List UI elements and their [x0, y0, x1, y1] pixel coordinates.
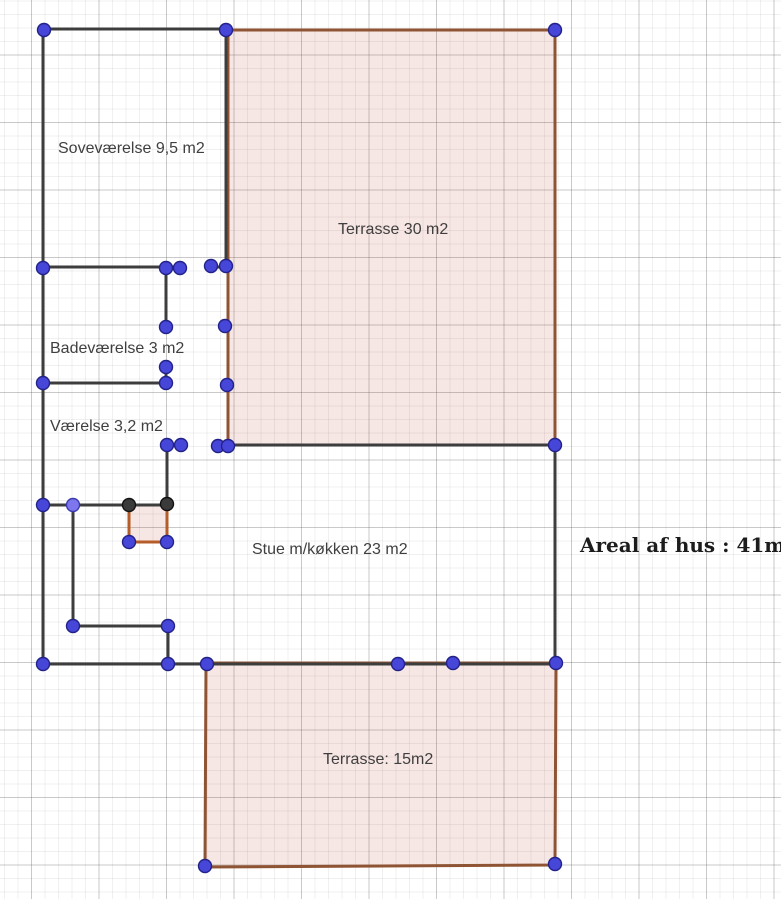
- vertex-point[interactable]: [199, 860, 212, 873]
- vertex-point[interactable]: [162, 658, 175, 671]
- label-terrasse-30: Terrasse 30 m2: [338, 221, 448, 238]
- vertex-point[interactable]: [221, 379, 234, 392]
- vertex-point[interactable]: [220, 260, 233, 273]
- label-sovevaerelse: Soveværelse 9,5 m2: [58, 140, 205, 157]
- vertex-point[interactable]: [37, 262, 50, 275]
- vertex-point[interactable]: [67, 499, 80, 512]
- label-terrasse-15: Terrasse: 15m2: [323, 751, 433, 768]
- vertex-point[interactable]: [161, 498, 174, 511]
- vertex-point[interactable]: [37, 499, 50, 512]
- label-vaerelse: Værelse 3,2 m2: [50, 418, 163, 435]
- label-stue: Stue m/køkken 23 m2: [252, 541, 408, 558]
- vertex-point[interactable]: [550, 657, 563, 670]
- vertex-point[interactable]: [37, 377, 50, 390]
- floorplan-svg: Soveværelse 9,5 m2Terrasse 30 m2Badevære…: [0, 0, 781, 899]
- vertex-point[interactable]: [123, 536, 136, 549]
- vertex-point[interactable]: [392, 658, 405, 671]
- label-badevaerelse: Badeværelse 3 m2: [50, 340, 184, 357]
- vertex-point[interactable]: [220, 24, 233, 37]
- vertex-point[interactable]: [549, 858, 562, 871]
- label-areal-af-hus: Areal af hus : 41m2: [579, 533, 781, 557]
- vertex-point[interactable]: [161, 536, 174, 549]
- vertex-point[interactable]: [219, 320, 232, 333]
- vertex-point[interactable]: [123, 499, 136, 512]
- vertex-point[interactable]: [160, 262, 173, 275]
- vertex-point[interactable]: [175, 439, 188, 452]
- vertex-point[interactable]: [222, 440, 235, 453]
- vertex-point[interactable]: [160, 361, 173, 374]
- vertex-point[interactable]: [161, 439, 174, 452]
- vertex-point[interactable]: [162, 620, 175, 633]
- vertex-point[interactable]: [160, 321, 173, 334]
- floorplan-canvas[interactable]: Soveværelse 9,5 m2Terrasse 30 m2Badevære…: [0, 0, 781, 899]
- vertex-point[interactable]: [549, 24, 562, 37]
- vertex-point[interactable]: [447, 657, 460, 670]
- vertex-point[interactable]: [160, 377, 173, 390]
- vertex-point[interactable]: [174, 262, 187, 275]
- fireplace-square-polygon[interactable]: [129, 505, 167, 542]
- vertex-point[interactable]: [38, 24, 51, 37]
- vertex-point[interactable]: [549, 439, 562, 452]
- vertex-point[interactable]: [205, 260, 218, 273]
- vertex-point[interactable]: [67, 620, 80, 633]
- vertex-point[interactable]: [201, 658, 214, 671]
- vertex-point[interactable]: [37, 658, 50, 671]
